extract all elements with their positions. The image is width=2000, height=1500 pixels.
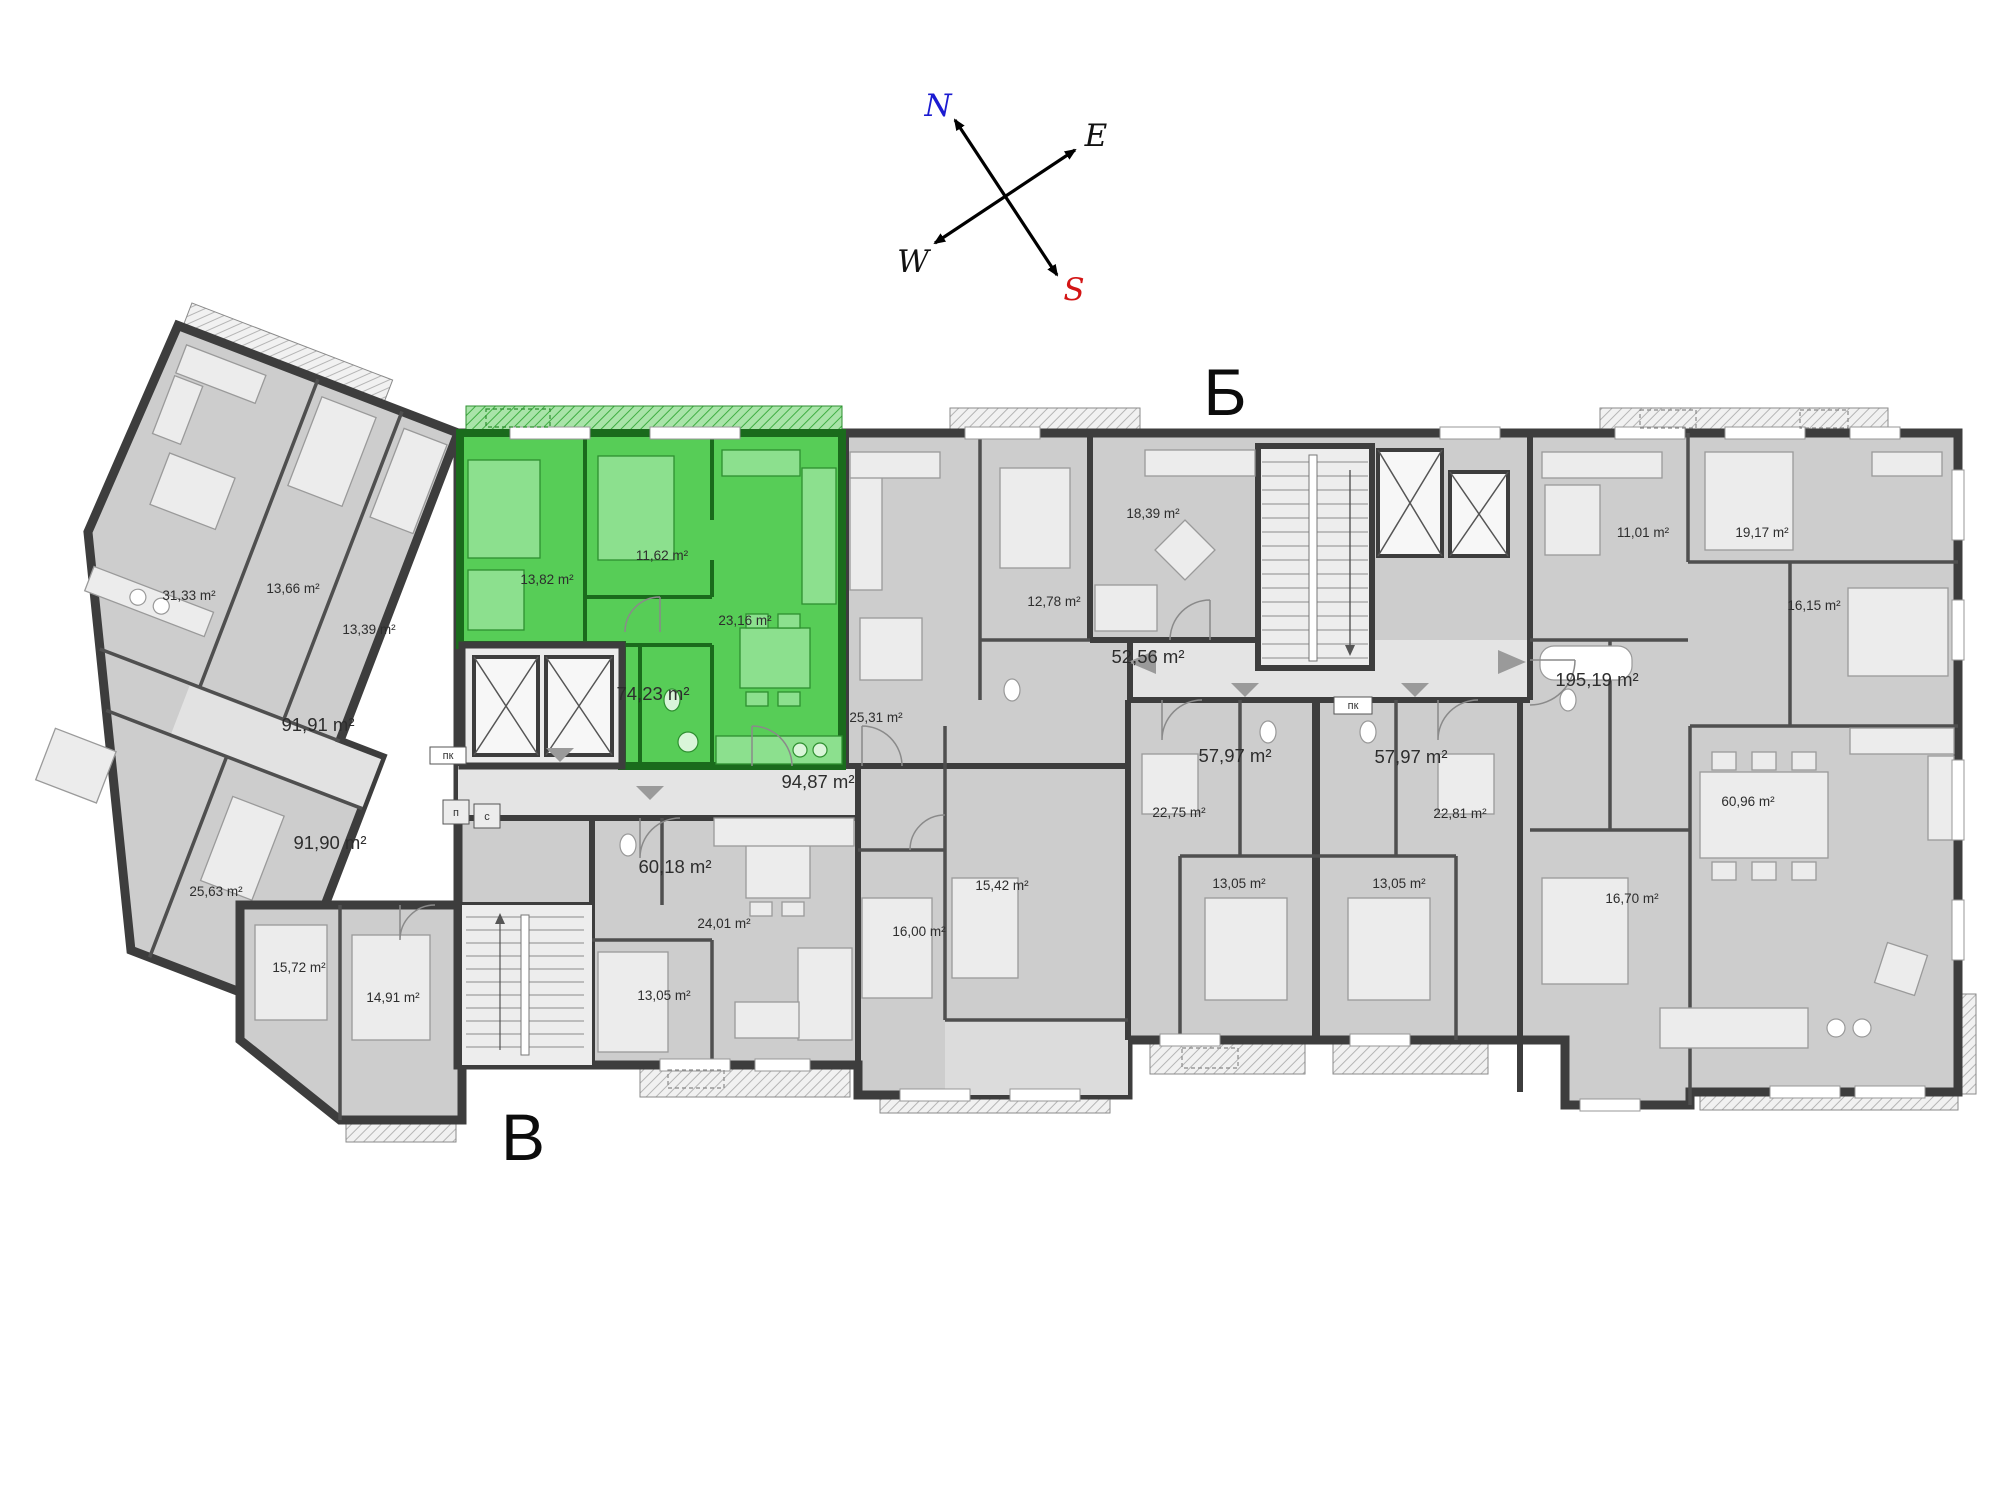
- compass-ew-axis: [935, 150, 1075, 243]
- area-label: 31,33 m²: [162, 588, 216, 603]
- area-label: 13,82 m²: [520, 572, 574, 587]
- area-label: 52,56 m²: [1111, 646, 1184, 667]
- area-label: 57,97 m²: [1198, 745, 1271, 766]
- compass-rose: NEWS: [897, 88, 1108, 308]
- area-label: 15,72 m²: [272, 960, 326, 975]
- area-label: 11,01 m²: [1617, 525, 1670, 540]
- central-staircase: [1258, 446, 1372, 668]
- area-label: 25,63 m²: [189, 884, 243, 899]
- area-label: 18,39 m²: [1126, 506, 1180, 521]
- area-label: 22,81 m²: [1433, 806, 1487, 821]
- section-label: Б: [1203, 355, 1246, 429]
- area-label: 24,01 m²: [697, 916, 751, 931]
- utility-label: пк: [443, 750, 454, 762]
- area-label: 22,75 m²: [1152, 805, 1206, 820]
- area-label: 91,91 m²: [281, 714, 354, 735]
- area-label: 23,16 m²: [718, 613, 772, 628]
- area-label: 195,19 m²: [1555, 669, 1638, 690]
- compass-letter: N: [923, 88, 953, 124]
- area-label: 14,91 m²: [366, 990, 420, 1005]
- terrace: [945, 1020, 1128, 1095]
- area-label: 11,62 m²: [636, 548, 689, 563]
- lower-left-block: [240, 905, 462, 1120]
- area-label: 16,00 m²: [892, 924, 946, 939]
- area-label: 57,97 m²: [1374, 746, 1447, 767]
- area-label: 13,39 m²: [342, 622, 396, 637]
- area-label: 91,90 m²: [293, 832, 366, 853]
- staircase-v: [462, 905, 592, 1065]
- compass-letter: E: [1084, 118, 1108, 154]
- utility-label: пк: [1348, 700, 1359, 712]
- utility-label: п: [453, 807, 459, 819]
- area-label: 60,18 m²: [638, 856, 711, 877]
- utility-label: с: [484, 811, 490, 823]
- area-label: 13,66 m²: [266, 581, 320, 596]
- area-label: 25,31 m²: [849, 710, 903, 725]
- area-label: 74,23 m²: [616, 683, 689, 704]
- area-label: 60,96 m²: [1721, 794, 1775, 809]
- area-label: 13,05 m²: [1372, 876, 1426, 891]
- area-label: 16,15 m²: [1787, 598, 1841, 613]
- area-label: 13,05 m²: [637, 988, 691, 1003]
- floorplan-page: NEWS: [0, 0, 2000, 1500]
- area-label: 94,87 m²: [781, 771, 854, 792]
- section-label: В: [501, 1100, 545, 1174]
- area-label: 13,05 m²: [1212, 876, 1266, 891]
- area-label: 15,42 m²: [975, 878, 1029, 893]
- elevator-core-west: [462, 645, 622, 766]
- area-label: 19,17 m²: [1735, 525, 1789, 540]
- area-label: 16,70 m²: [1605, 891, 1659, 906]
- compass-letter: W: [897, 244, 931, 280]
- floorplan-svg: NEWS: [0, 0, 2000, 1500]
- area-label: 12,78 m²: [1027, 594, 1081, 609]
- compass-letter: S: [1063, 272, 1084, 308]
